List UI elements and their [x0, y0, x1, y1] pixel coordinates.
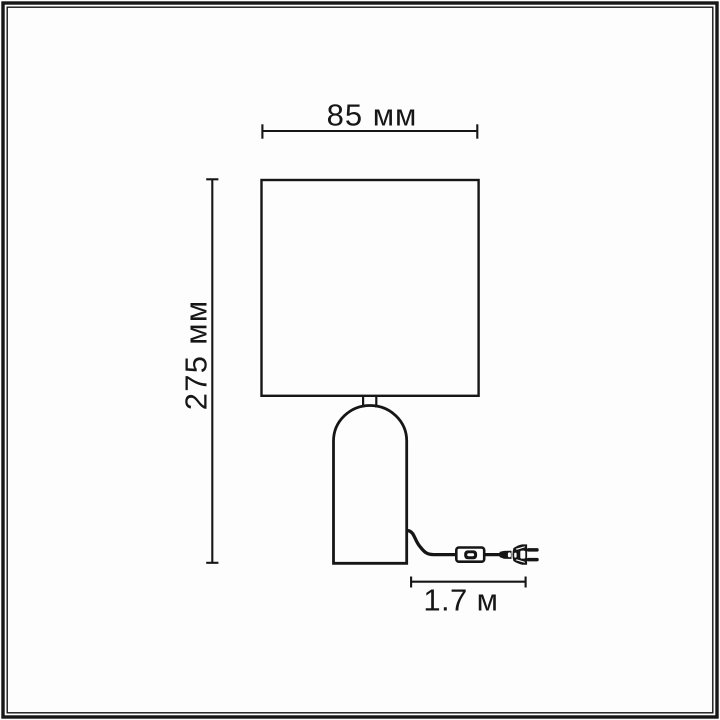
svg-text:1.7 м: 1.7 м	[423, 583, 498, 618]
svg-text:275 мм: 275 мм	[178, 300, 213, 411]
svg-text:85 мм: 85 мм	[327, 98, 418, 133]
